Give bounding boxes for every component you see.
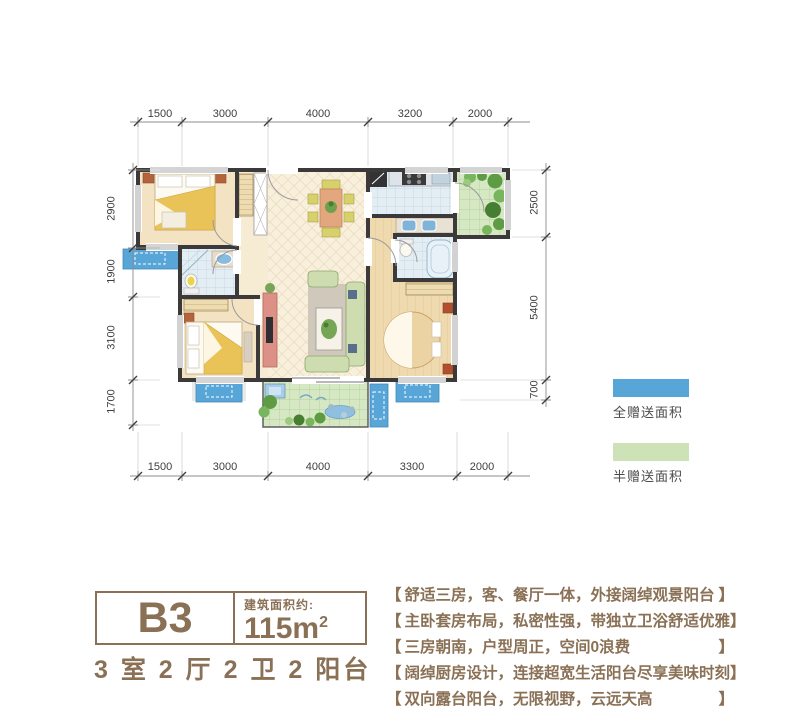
dim-top-1: 1500	[138, 108, 182, 121]
dim-top-4: 3200	[388, 108, 432, 121]
bracket-open: 【	[386, 635, 402, 661]
bracket-close: 】	[718, 687, 734, 713]
bracket-close: 】	[718, 635, 734, 661]
half-gift-swatch	[613, 443, 689, 461]
wardrobe	[406, 283, 453, 295]
bracket-open: 【	[386, 583, 402, 609]
kitchen-sink	[432, 173, 450, 184]
gift-area-bottom-right	[396, 381, 439, 402]
chaise	[305, 356, 349, 372]
dim-top-3: 4000	[296, 108, 340, 121]
dim-top-5: 2000	[458, 108, 502, 121]
area-caption: 建筑面积约:	[244, 596, 365, 613]
fridge	[370, 171, 387, 187]
gift-area-bottom-left	[196, 381, 242, 402]
dim-right-3: 700	[529, 368, 542, 412]
dim-top-2: 3000	[203, 108, 247, 121]
dim-right-1: 2500	[529, 181, 542, 225]
bracket-close: 】	[718, 583, 734, 609]
closet	[254, 173, 267, 235]
half-gift-label: 半赠送面积	[613, 466, 713, 485]
area-exponent: 2	[319, 614, 328, 631]
unit-name-cell: B3	[97, 593, 233, 643]
floor-plan-page: 1500 3000 4000 3200 2000 1500 3000 4000 …	[0, 0, 800, 720]
feature-list: 【 舒适三房，客、餐厅一体，外接阔绰观景阳台 】 【 主卧套房布局，私密性强，带…	[386, 583, 734, 713]
rooms-summary: 3 室 2 厅 2 卫 2 阳台	[94, 650, 371, 686]
full-gift-swatch	[613, 379, 689, 397]
dim-bottom-3: 4000	[296, 461, 340, 474]
dim-left-3: 3100	[106, 316, 119, 360]
feature-item: 【 双向露台阳台，无限视野，云远天高 】	[386, 687, 734, 713]
bracket-open: 【	[386, 609, 402, 635]
legend: 全赠送面积 半赠送面积	[613, 379, 713, 485]
armchair	[308, 271, 338, 287]
legend-item-half-gift: 半赠送面积	[613, 443, 713, 485]
dim-bottom-2: 3000	[203, 461, 247, 474]
bracket-close: 】	[730, 609, 746, 635]
area-value: 115m2	[244, 614, 365, 644]
unit-name: B3	[138, 597, 193, 640]
gift-area-left	[123, 249, 180, 269]
legend-item-full-gift: 全赠送面积	[613, 379, 713, 421]
tv	[266, 317, 273, 343]
wardrobe	[239, 174, 253, 216]
dim-bottom-1: 1500	[138, 461, 182, 474]
unit-info-box: B3 建筑面积约: 115m2	[95, 591, 367, 645]
feature-item: 【 主卧套房布局，私密性强，带独立卫浴舒适优雅 】	[386, 609, 734, 635]
bracket-close: 】	[730, 661, 746, 687]
bracket-open: 【	[386, 687, 402, 713]
dim-left-2: 1900	[106, 250, 119, 294]
dim-bottom-4: 3300	[390, 461, 434, 474]
unit-area-cell: 建筑面积约: 115m2	[233, 593, 365, 643]
dim-left-4: 1700	[106, 380, 119, 424]
dim-left-1: 2900	[106, 187, 119, 231]
full-gift-label: 全赠送面积	[613, 402, 713, 421]
feature-item: 【 舒适三房，客、餐厅一体，外接阔绰观景阳台 】	[386, 583, 734, 609]
bracket-open: 【	[386, 661, 402, 687]
feature-item: 【 三房朝南，户型周正，空间0浪费 】	[386, 635, 734, 661]
feature-item: 【 阔绰厨房设计，连接超宽生活阳台尽享美味时刻 】	[386, 661, 734, 687]
dim-bottom-5: 2000	[460, 461, 504, 474]
wardrobe	[184, 299, 228, 311]
dim-right-2: 5400	[529, 286, 542, 330]
